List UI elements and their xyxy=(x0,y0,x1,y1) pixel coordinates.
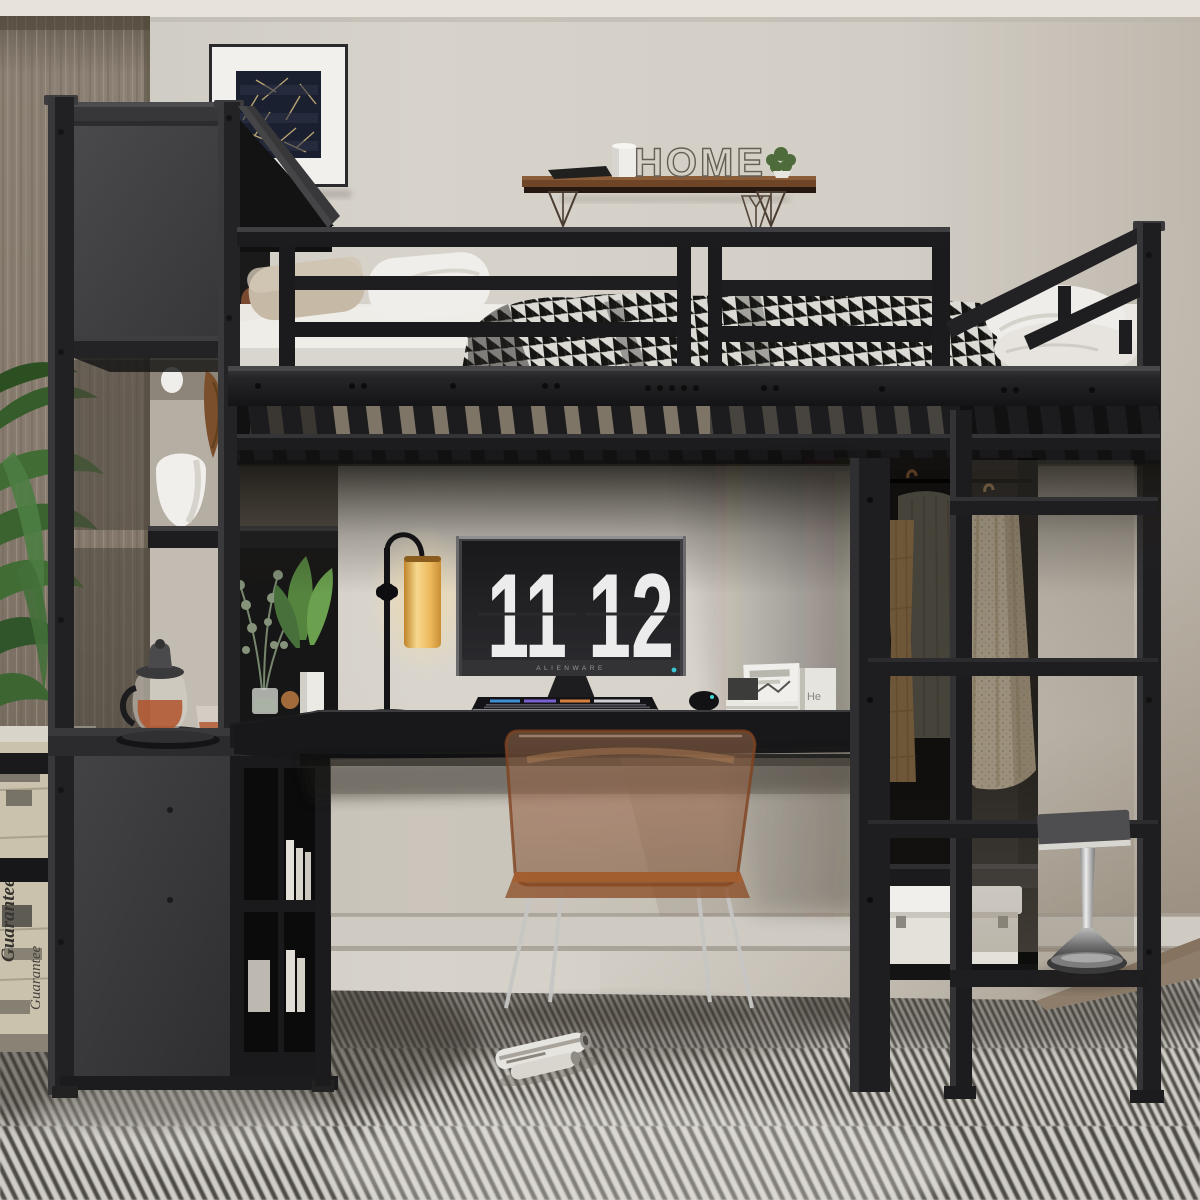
svg-text:He: He xyxy=(807,691,821,703)
svg-text:ALIENWARE: ALIENWARE xyxy=(536,665,606,672)
svg-text:HOME: HOME xyxy=(634,141,766,185)
